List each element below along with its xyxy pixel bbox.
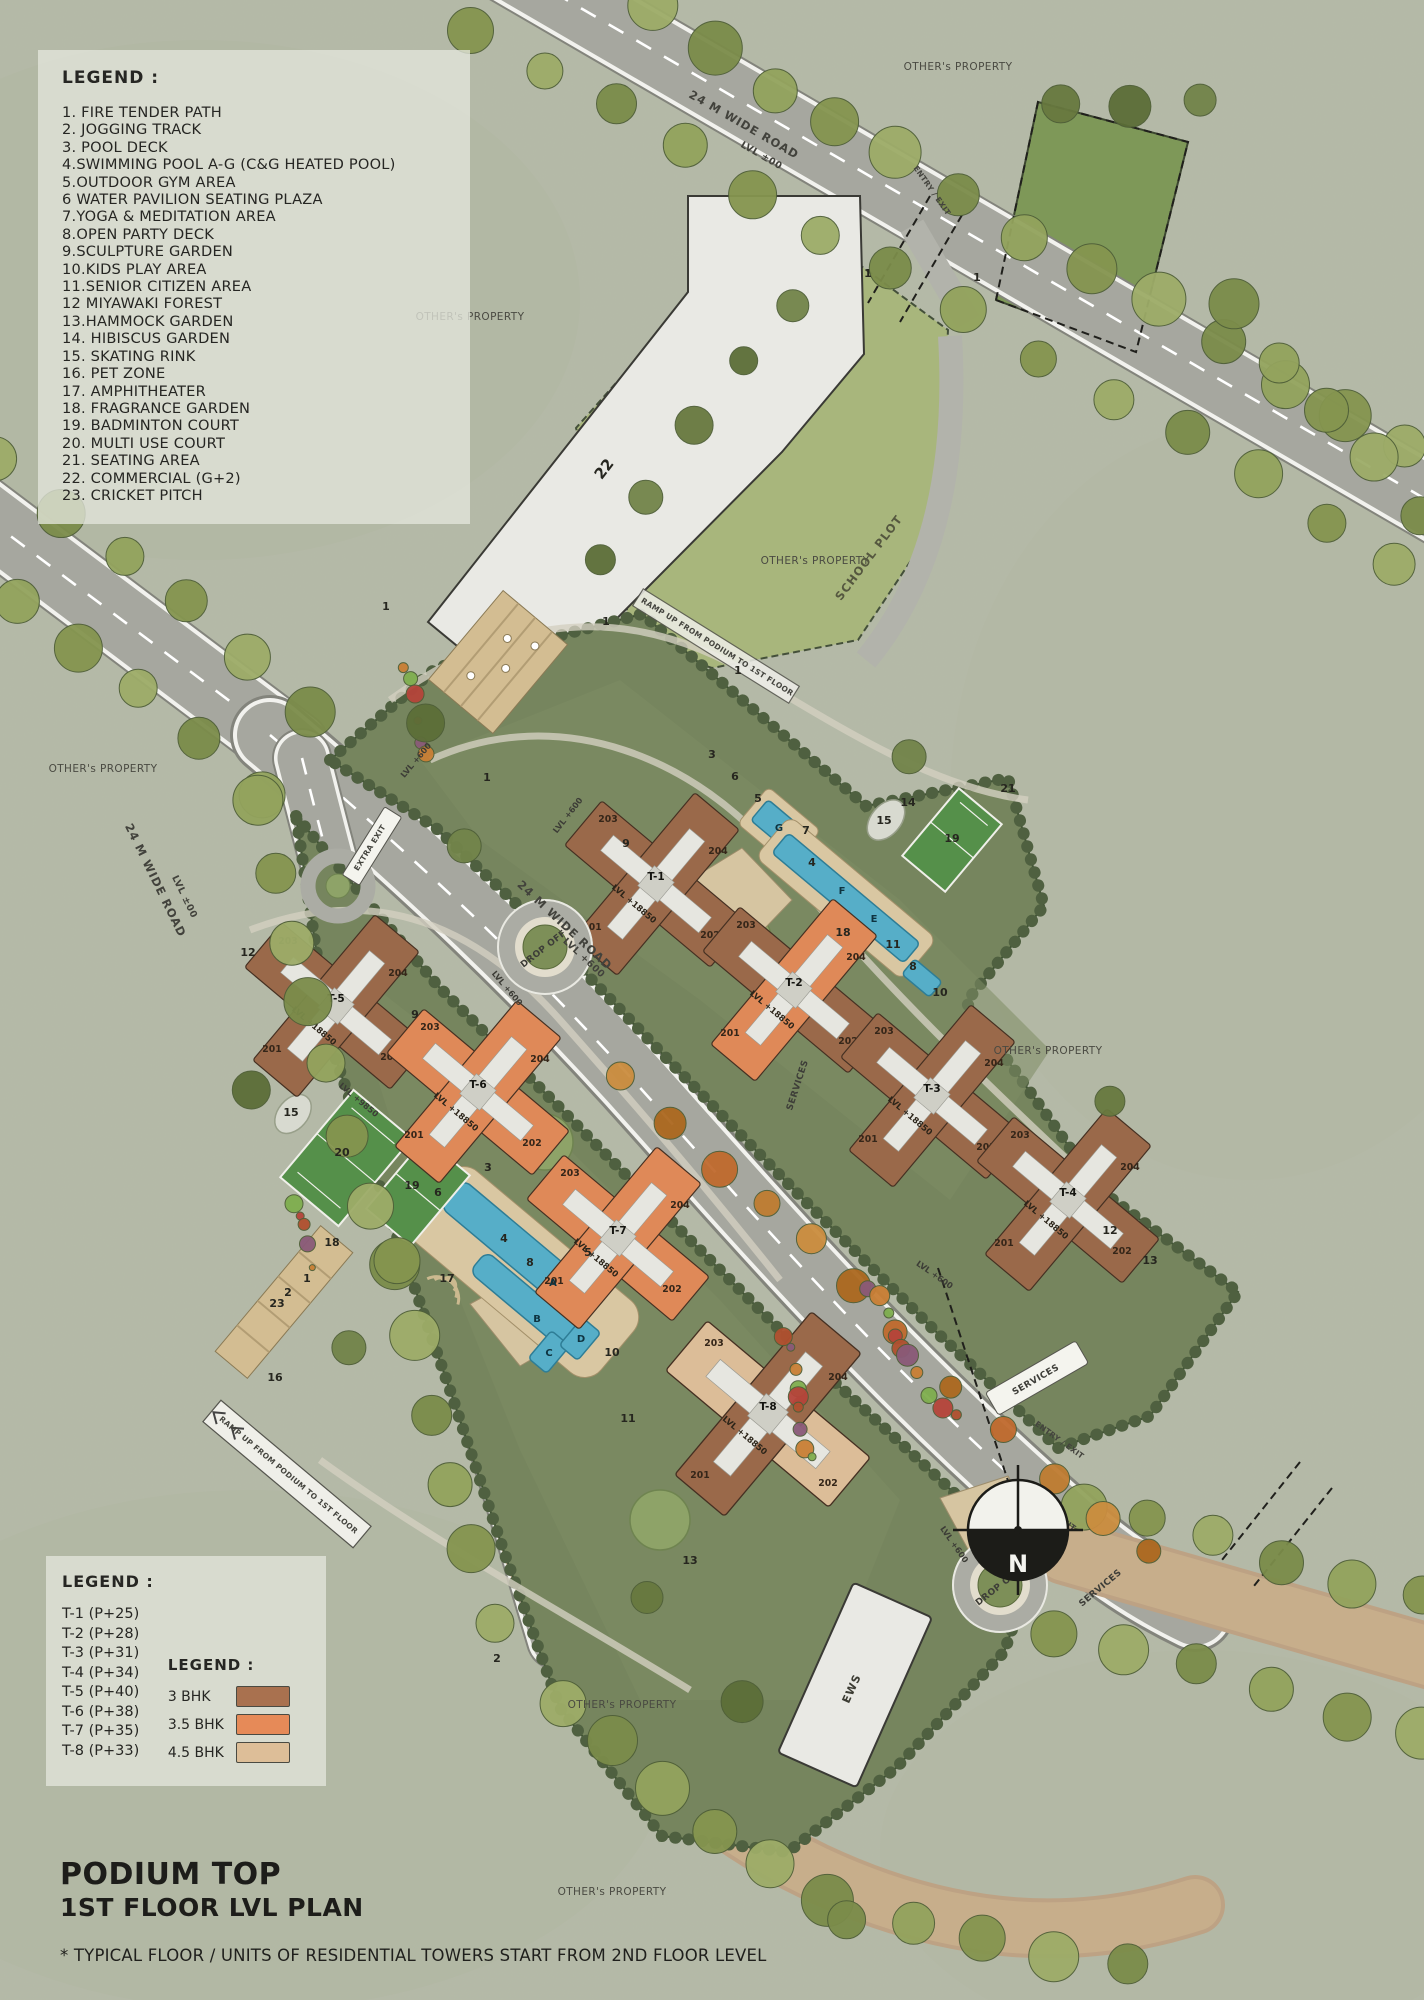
tree-icon	[730, 347, 758, 375]
svg-text:203: 203	[874, 1026, 893, 1037]
svg-text:203: 203	[420, 1022, 439, 1033]
legend-amenities-panel: LEGEND : 1. FIRE TENDER PATH 2. JOGGING …	[38, 50, 470, 524]
tree-icon	[348, 1183, 394, 1229]
svg-text:F: F	[839, 886, 846, 897]
svg-text:204: 204	[670, 1200, 690, 1211]
tree-icon	[597, 84, 637, 124]
tower-item: T-4 (P+34)	[62, 1664, 154, 1684]
legend-item: 12 MIYAWAKI FOREST	[62, 295, 460, 312]
tower-item: T-6 (P+38)	[62, 1703, 154, 1723]
tree-icon	[1020, 341, 1056, 377]
svg-text:A: A	[549, 1278, 557, 1289]
tree-icon	[1094, 380, 1134, 420]
tree-icon	[1042, 85, 1080, 123]
tree-icon	[476, 1604, 514, 1642]
svg-text:5: 5	[584, 1246, 592, 1259]
title-block: PODIUM TOP 1ST FLOOR LVL PLAN	[60, 1858, 364, 1924]
svg-text:T-1: T-1	[647, 871, 664, 883]
svg-text:204: 204	[984, 1058, 1004, 1069]
legend-item: 20. MULTI USE COURT	[62, 435, 460, 452]
legend-item: 13.HAMMOCK GARDEN	[62, 313, 460, 330]
svg-text:12: 12	[1102, 1224, 1117, 1237]
legend-item: 4.SWIMMING POOL A-G (C&G HEATED POOL)	[62, 156, 460, 173]
svg-text:202: 202	[818, 1478, 837, 1489]
tree-icon	[911, 1367, 923, 1379]
legend-item: 10.KIDS PLAY AREA	[62, 261, 460, 278]
tree-icon	[636, 1761, 690, 1815]
svg-text:204: 204	[530, 1054, 550, 1065]
tower-item: T-8 (P+33)	[62, 1742, 154, 1762]
tree-icon	[631, 1582, 663, 1614]
svg-text:3: 3	[708, 748, 716, 761]
legend-item: 11.SENIOR CITIZEN AREA	[62, 278, 460, 295]
tree-icon	[787, 1343, 795, 1351]
legend-towers-panel: LEGEND : T-1 (P+25) T-2 (P+28) T-3 (P+31…	[46, 1556, 326, 1786]
tree-icon	[585, 545, 615, 575]
tree-icon	[721, 1681, 763, 1723]
tree-icon	[753, 69, 797, 113]
tree-icon	[398, 663, 408, 673]
unit-type-legend: LEGEND : 3 BHK 3.5 BHK 4.5 BHK	[168, 1656, 290, 1770]
svg-text:T-2: T-2	[785, 977, 802, 989]
svg-text:B: B	[533, 1314, 541, 1325]
tree-icon	[1373, 543, 1415, 585]
tree-icon	[1001, 215, 1047, 261]
tree-icon	[629, 480, 663, 514]
svg-text:20: 20	[334, 1146, 350, 1159]
tree-icon	[693, 1810, 737, 1854]
svg-text:18: 18	[835, 926, 850, 939]
svg-text:1: 1	[303, 1272, 311, 1285]
tree-icon	[298, 1218, 310, 1230]
svg-text:D: D	[577, 1334, 585, 1345]
svg-text:204: 204	[1120, 1162, 1140, 1173]
legend-item: 5.OUTDOOR GYM AREA	[62, 174, 460, 191]
others-property-1: OTHER's PROPERTY	[904, 61, 1013, 73]
others-property-7: OTHER's PROPERTY	[558, 1886, 667, 1898]
tree-icon	[300, 1236, 316, 1252]
svg-text:19: 19	[404, 1179, 419, 1192]
legend-item: 18. FRAGRANCE GARDEN	[62, 400, 460, 417]
svg-text:201: 201	[994, 1238, 1013, 1249]
tree-icon	[921, 1388, 937, 1404]
tree-icon	[796, 1224, 826, 1254]
svg-text:203: 203	[1010, 1130, 1029, 1141]
tree-icon	[869, 247, 911, 289]
tree-icon	[1166, 410, 1210, 454]
svg-text:201: 201	[690, 1470, 709, 1481]
tree-icon	[754, 1190, 780, 1216]
svg-text:202: 202	[662, 1284, 681, 1295]
tree-icon	[940, 1376, 962, 1398]
svg-text:19: 19	[944, 832, 959, 845]
tree-icon	[1350, 433, 1398, 481]
tree-icon	[870, 1286, 890, 1306]
tree-icon	[448, 8, 494, 54]
legend-item: 17. AMPHITHEATER	[62, 383, 460, 400]
tree-icon	[1137, 1539, 1161, 1563]
svg-text:202: 202	[522, 1138, 541, 1149]
tree-icon	[688, 21, 742, 75]
tree-icon	[1095, 1086, 1125, 1116]
svg-text:201: 201	[404, 1130, 423, 1141]
tree-icon	[270, 921, 314, 965]
svg-text:204: 204	[828, 1372, 848, 1383]
tree-icon	[801, 216, 839, 254]
legend-item: 15. SKATING RINK	[62, 348, 460, 365]
tree-icon	[1176, 1644, 1216, 1684]
tree-icon	[119, 669, 157, 707]
tree-icon	[1308, 504, 1346, 542]
svg-text:204: 204	[388, 968, 408, 979]
tree-icon	[285, 687, 335, 737]
unit-type-row: 4.5 BHK	[168, 1742, 290, 1763]
svg-text:6: 6	[434, 1186, 442, 1199]
legend-towers-title: LEGEND :	[62, 1572, 154, 1591]
tree-icon	[1099, 1625, 1149, 1675]
tree-icon	[224, 634, 270, 680]
tree-icon	[1129, 1500, 1165, 1536]
svg-text:17: 17	[439, 1272, 454, 1285]
tree-icon	[588, 1716, 638, 1766]
svg-text:E: E	[871, 914, 878, 925]
unit-type-label: 4.5 BHK	[168, 1745, 226, 1761]
legend-item: 16. PET ZONE	[62, 365, 460, 382]
tree-icon	[527, 53, 563, 89]
tree-icon	[1209, 279, 1259, 329]
tree-icon	[1086, 1502, 1120, 1536]
tree-icon	[729, 171, 777, 219]
tree-icon	[893, 1902, 935, 1944]
legend-item: 8.OPEN PARTY DECK	[62, 226, 460, 243]
svg-text:4: 4	[500, 1232, 508, 1245]
svg-text:1: 1	[734, 664, 742, 677]
svg-text:202: 202	[1112, 1246, 1131, 1257]
svg-text:3: 3	[484, 1161, 492, 1174]
tree-icon	[232, 1071, 270, 1109]
svg-text:2: 2	[284, 1286, 292, 1299]
legend-item: 1. FIRE TENDER PATH	[62, 104, 460, 121]
svg-text:9: 9	[411, 1008, 419, 1021]
svg-text:9: 9	[622, 837, 630, 850]
svg-text:G: G	[775, 823, 783, 834]
tree-icon	[1323, 1693, 1371, 1741]
tree-icon	[793, 1402, 803, 1412]
svg-text:13: 13	[1142, 1254, 1157, 1267]
svg-text:12: 12	[240, 946, 255, 959]
tree-icon	[1193, 1515, 1233, 1555]
tree-icon	[1249, 1667, 1293, 1711]
svg-text:14: 14	[900, 796, 916, 809]
svg-text:10: 10	[604, 1346, 620, 1359]
svg-text:204: 204	[846, 952, 866, 963]
svg-text:1: 1	[483, 771, 491, 784]
north-letter: N	[1008, 1550, 1028, 1578]
tree-icon	[793, 1422, 807, 1436]
unit-type-label: 3.5 BHK	[168, 1717, 226, 1733]
tree-icon	[285, 1195, 303, 1213]
tree-icon	[746, 1840, 794, 1888]
tree-icon	[332, 1331, 366, 1365]
tree-icon	[0, 579, 39, 623]
tree-icon	[951, 1410, 961, 1420]
tree-icon	[106, 537, 144, 575]
legend-item: 23. CRICKET PITCH	[62, 487, 460, 504]
tower-item: T-2 (P+28)	[62, 1625, 154, 1645]
legend-item: 6 WATER PAVILION SEATING PLAZA	[62, 191, 460, 208]
svg-text:4: 4	[808, 856, 816, 869]
plan-footnote: * TYPICAL FLOOR / UNITS OF RESIDENTIAL T…	[60, 1946, 767, 1965]
svg-text:T-8: T-8	[759, 1401, 776, 1413]
unit-type-label: 3 BHK	[168, 1689, 226, 1705]
tree-icon	[1031, 1611, 1077, 1657]
tree-icon	[777, 290, 809, 322]
tower-item: T-5 (P+40)	[62, 1683, 154, 1703]
tree-icon	[1132, 272, 1186, 326]
tree-icon	[309, 1265, 315, 1271]
svg-text:204: 204	[708, 846, 728, 857]
svg-text:2: 2	[493, 1652, 501, 1665]
tree-icon	[178, 717, 220, 759]
svg-text:8: 8	[909, 960, 917, 973]
unit-type-row: 3 BHK	[168, 1686, 290, 1707]
tree-icon	[811, 98, 859, 146]
plan-title-line2: 1ST FLOOR LVL PLAN	[60, 1892, 364, 1924]
legend-item: 21. SEATING AREA	[62, 452, 460, 469]
tree-icon	[990, 1417, 1016, 1443]
svg-text:C: C	[545, 1348, 552, 1359]
tree-icon	[1109, 85, 1151, 127]
svg-text:15: 15	[876, 814, 891, 827]
svg-text:201: 201	[720, 1028, 739, 1039]
tree-icon	[1259, 343, 1299, 383]
tree-icon	[1328, 1560, 1376, 1608]
unit-type-swatch-3-5bhk	[236, 1714, 290, 1735]
legend-item: 3. POOL DECK	[62, 139, 460, 156]
tree-icon	[606, 1062, 634, 1090]
unit-type-swatch-4-5bhk	[236, 1742, 290, 1763]
svg-text:23: 23	[269, 1297, 284, 1310]
svg-text:T-3: T-3	[923, 1083, 940, 1095]
svg-text:11: 11	[885, 938, 900, 951]
tree-icon	[675, 406, 713, 444]
tree-icon	[808, 1453, 816, 1461]
tree-icon	[892, 740, 926, 774]
others-property-4: OTHER's PROPERTY	[49, 763, 158, 775]
tree-icon	[1235, 450, 1283, 498]
legend-item: 9.SCULPTURE GARDEN	[62, 243, 460, 260]
legend-item: 22. COMMERCIAL (G+2)	[62, 470, 460, 487]
tower-item: T-7 (P+35)	[62, 1722, 154, 1742]
svg-text:18: 18	[324, 1236, 339, 1249]
tree-icon	[406, 685, 424, 703]
tree-icon	[959, 1915, 1005, 1961]
svg-text:7: 7	[802, 824, 810, 837]
svg-text:6: 6	[731, 770, 739, 783]
tree-icon	[447, 829, 481, 863]
svg-text:203: 203	[704, 1338, 723, 1349]
tree-icon	[407, 704, 445, 742]
tree-icon	[428, 1463, 472, 1507]
tree-icon	[307, 1044, 345, 1082]
legend-amenities-title: LEGEND :	[62, 68, 460, 88]
svg-text:T-7: T-7	[609, 1225, 626, 1237]
svg-text:201: 201	[858, 1134, 877, 1145]
tree-icon	[1067, 244, 1117, 294]
tree-icon	[1184, 84, 1216, 116]
tree-icon	[884, 1308, 894, 1318]
tree-icon	[447, 1525, 495, 1573]
tree-icon	[654, 1107, 686, 1139]
svg-text:16: 16	[267, 1371, 283, 1384]
legend-item: 19. BADMINTON COURT	[62, 417, 460, 434]
tower-item: T-3 (P+31)	[62, 1644, 154, 1664]
svg-text:13: 13	[682, 1554, 697, 1567]
tree-icon	[1029, 1932, 1079, 1982]
legend-item: 7.YOGA & MEDITATION AREA	[62, 208, 460, 225]
tree-icon	[933, 1398, 953, 1418]
tree-icon	[897, 1344, 919, 1366]
unit-type-swatch-3bhk	[236, 1686, 290, 1707]
legend-item: 2. JOGGING TRACK	[62, 121, 460, 138]
tree-icon	[54, 624, 102, 672]
svg-text:203: 203	[736, 920, 755, 931]
svg-text:5: 5	[754, 792, 762, 805]
others-property-6: OTHER's PROPERTY	[568, 1699, 677, 1711]
tree-icon	[1108, 1944, 1148, 1984]
tree-icon	[284, 978, 332, 1026]
tree-icon	[663, 123, 707, 167]
plan-title-line1: PODIUM TOP	[60, 1858, 364, 1892]
svg-text:T-4: T-4	[1059, 1187, 1076, 1199]
svg-text:11: 11	[620, 1412, 635, 1425]
tree-icon	[828, 1901, 866, 1939]
tower-item: T-1 (P+25)	[62, 1605, 154, 1625]
svg-text:10: 10	[932, 986, 948, 999]
svg-text:1: 1	[864, 267, 872, 280]
svg-text:203: 203	[598, 814, 617, 825]
legend-item: 14. HIBISCUS GARDEN	[62, 330, 460, 347]
tree-icon	[233, 775, 283, 825]
svg-text:8: 8	[526, 1256, 534, 1269]
svg-text:201: 201	[262, 1044, 281, 1055]
svg-text:1: 1	[602, 615, 610, 628]
tree-icon	[412, 1395, 452, 1435]
svg-text:21: 21	[1000, 782, 1015, 795]
svg-text:203: 203	[560, 1168, 579, 1179]
unit-type-row: 3.5 BHK	[168, 1714, 290, 1735]
tree-icon	[1260, 1541, 1304, 1585]
others-property-5: OTHER's PROPERTY	[994, 1045, 1103, 1057]
tree-icon	[1305, 388, 1349, 432]
tree-icon	[404, 672, 418, 686]
svg-text:1: 1	[973, 271, 981, 284]
tree-icon	[702, 1151, 738, 1187]
svg-text:15: 15	[283, 1106, 298, 1119]
svg-text:1: 1	[382, 600, 390, 613]
svg-text:T-6: T-6	[469, 1079, 486, 1091]
legend-units-title: LEGEND :	[168, 1656, 290, 1674]
tree-icon	[165, 580, 207, 622]
tree-icon	[390, 1310, 440, 1360]
tree-icon	[374, 1238, 420, 1284]
tree-icon	[940, 287, 986, 333]
site-plan-page: T-1 LVL +18850 203 204 202 201 T-2 LVL +…	[0, 0, 1424, 2000]
tower-list: LEGEND : T-1 (P+25) T-2 (P+28) T-3 (P+31…	[62, 1572, 154, 1770]
tree-icon	[256, 853, 296, 893]
tree-icon	[790, 1363, 802, 1375]
